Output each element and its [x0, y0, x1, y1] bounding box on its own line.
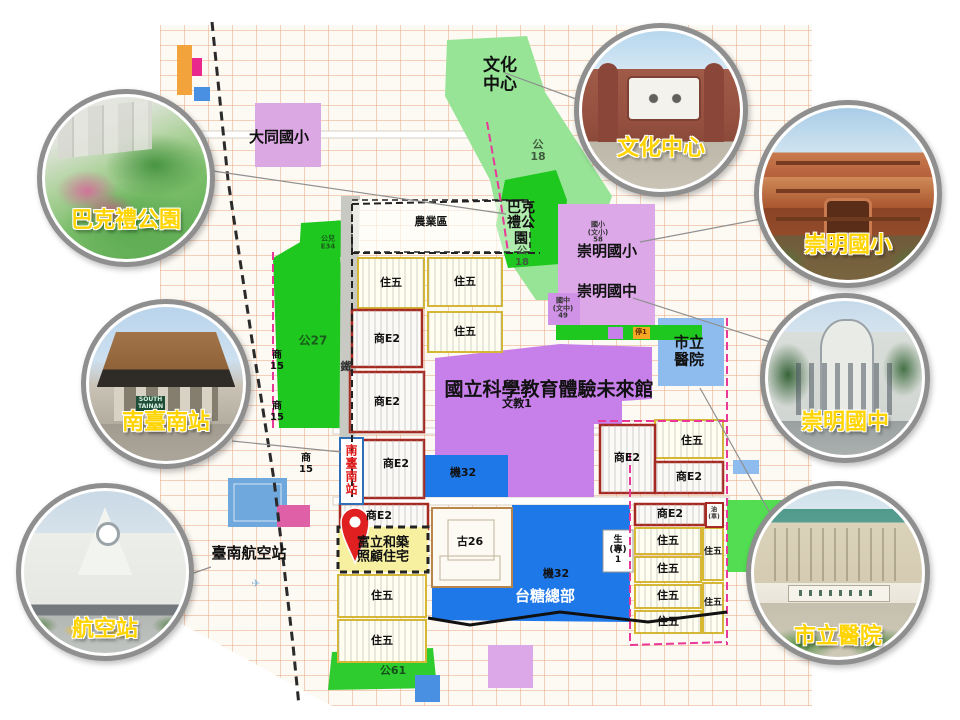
zone-nongye-area: [352, 200, 530, 252]
circle-barclay-park: 巴克禮公園: [37, 89, 215, 267]
zone-ji32-north: [413, 455, 508, 497]
zone-zhuwu-i-hatch: [338, 575, 426, 617]
zone-zhuwu-l-hatch: [655, 420, 723, 458]
location-pin-hole: [350, 517, 361, 528]
circle-chongming-junior-high: 崇明國中: [760, 293, 930, 463]
circle-south-tainan-station-label: 南臺南站: [122, 404, 210, 436]
zone-bottom-purple: [488, 645, 533, 688]
zone-zhuwu-q-hatch: [635, 528, 701, 554]
zone-post-block: [608, 327, 623, 339]
zone-zhuwu-s-hatch: [635, 585, 701, 608]
circle-chongming-elementary-label: 崇明國小: [804, 227, 892, 259]
zone-green-strip-mid: [556, 325, 702, 340]
zone-zhuwu-a-hatch: [358, 258, 424, 308]
zone-orange-topleft: [177, 45, 192, 95]
zone-bottom-blue: [415, 675, 440, 702]
circle-city-hospital-label: 市立醫院: [794, 618, 882, 650]
zone-shangE2-k-hatch: [600, 425, 655, 493]
circle-barclay-park-photo: [45, 97, 207, 259]
zone-parking1: [633, 327, 650, 339]
zone-zhuwu-u-hatch: [703, 528, 723, 580]
zone-zhuwu-j-hatch: [338, 620, 426, 662]
zone-shangE2-e-hatch: [350, 372, 424, 432]
zone-zhuwu-v-hatch: [703, 583, 723, 633]
zone-zhuwu-c-hatch: [428, 312, 502, 352]
zone-shangE2-n-hatch: [635, 504, 705, 525]
circle-airport: 航空站: [16, 483, 194, 661]
zone-magenta-topleft: [192, 58, 202, 76]
zone-zhuwu-r-hatch: [635, 557, 701, 582]
zone-pink-bottomleft: [277, 505, 310, 527]
zone-oil-small: [706, 503, 723, 527]
zone-shengzhuan1: [603, 530, 633, 572]
circle-south-tainan-station: SOUTH TAINAN南臺南站: [81, 299, 251, 469]
zone-junior-high-49: [548, 293, 580, 325]
zone-small-blue-right: [733, 460, 759, 474]
circle-chongming-junior-high-label: 崇明國中: [801, 404, 889, 436]
circle-culture-center-label: 文化中心: [617, 130, 705, 162]
map-cover-bottomleft: [160, 612, 332, 706]
zone-shangE2-m-hatch: [655, 462, 723, 493]
zone-gonger-e34: [299, 220, 347, 257]
circle-culture-center-photo: [582, 31, 740, 189]
zone-blue-topleft: [194, 87, 210, 101]
zone-datong-school: [255, 103, 321, 167]
circle-city-hospital: 市立醫院: [746, 481, 930, 665]
zone-zhuwu-b-hatch: [428, 258, 502, 306]
circle-airport-label: 航空站: [72, 611, 138, 643]
zone-shangE2-d-hatch: [352, 310, 422, 367]
slide-canvas: 大同國小文化 中心公 18農業區巴克 禮公 園公 18國小 (文小) 58國中 …: [0, 0, 960, 720]
line-station: [232, 441, 341, 452]
circle-south-tainan-station-photo: [89, 307, 243, 461]
circle-chongming-elementary: 崇明國小: [754, 100, 942, 288]
circle-culture-center: 文化中心: [574, 23, 748, 197]
circle-barclay-park-label: 巴克禮公園: [71, 202, 181, 234]
